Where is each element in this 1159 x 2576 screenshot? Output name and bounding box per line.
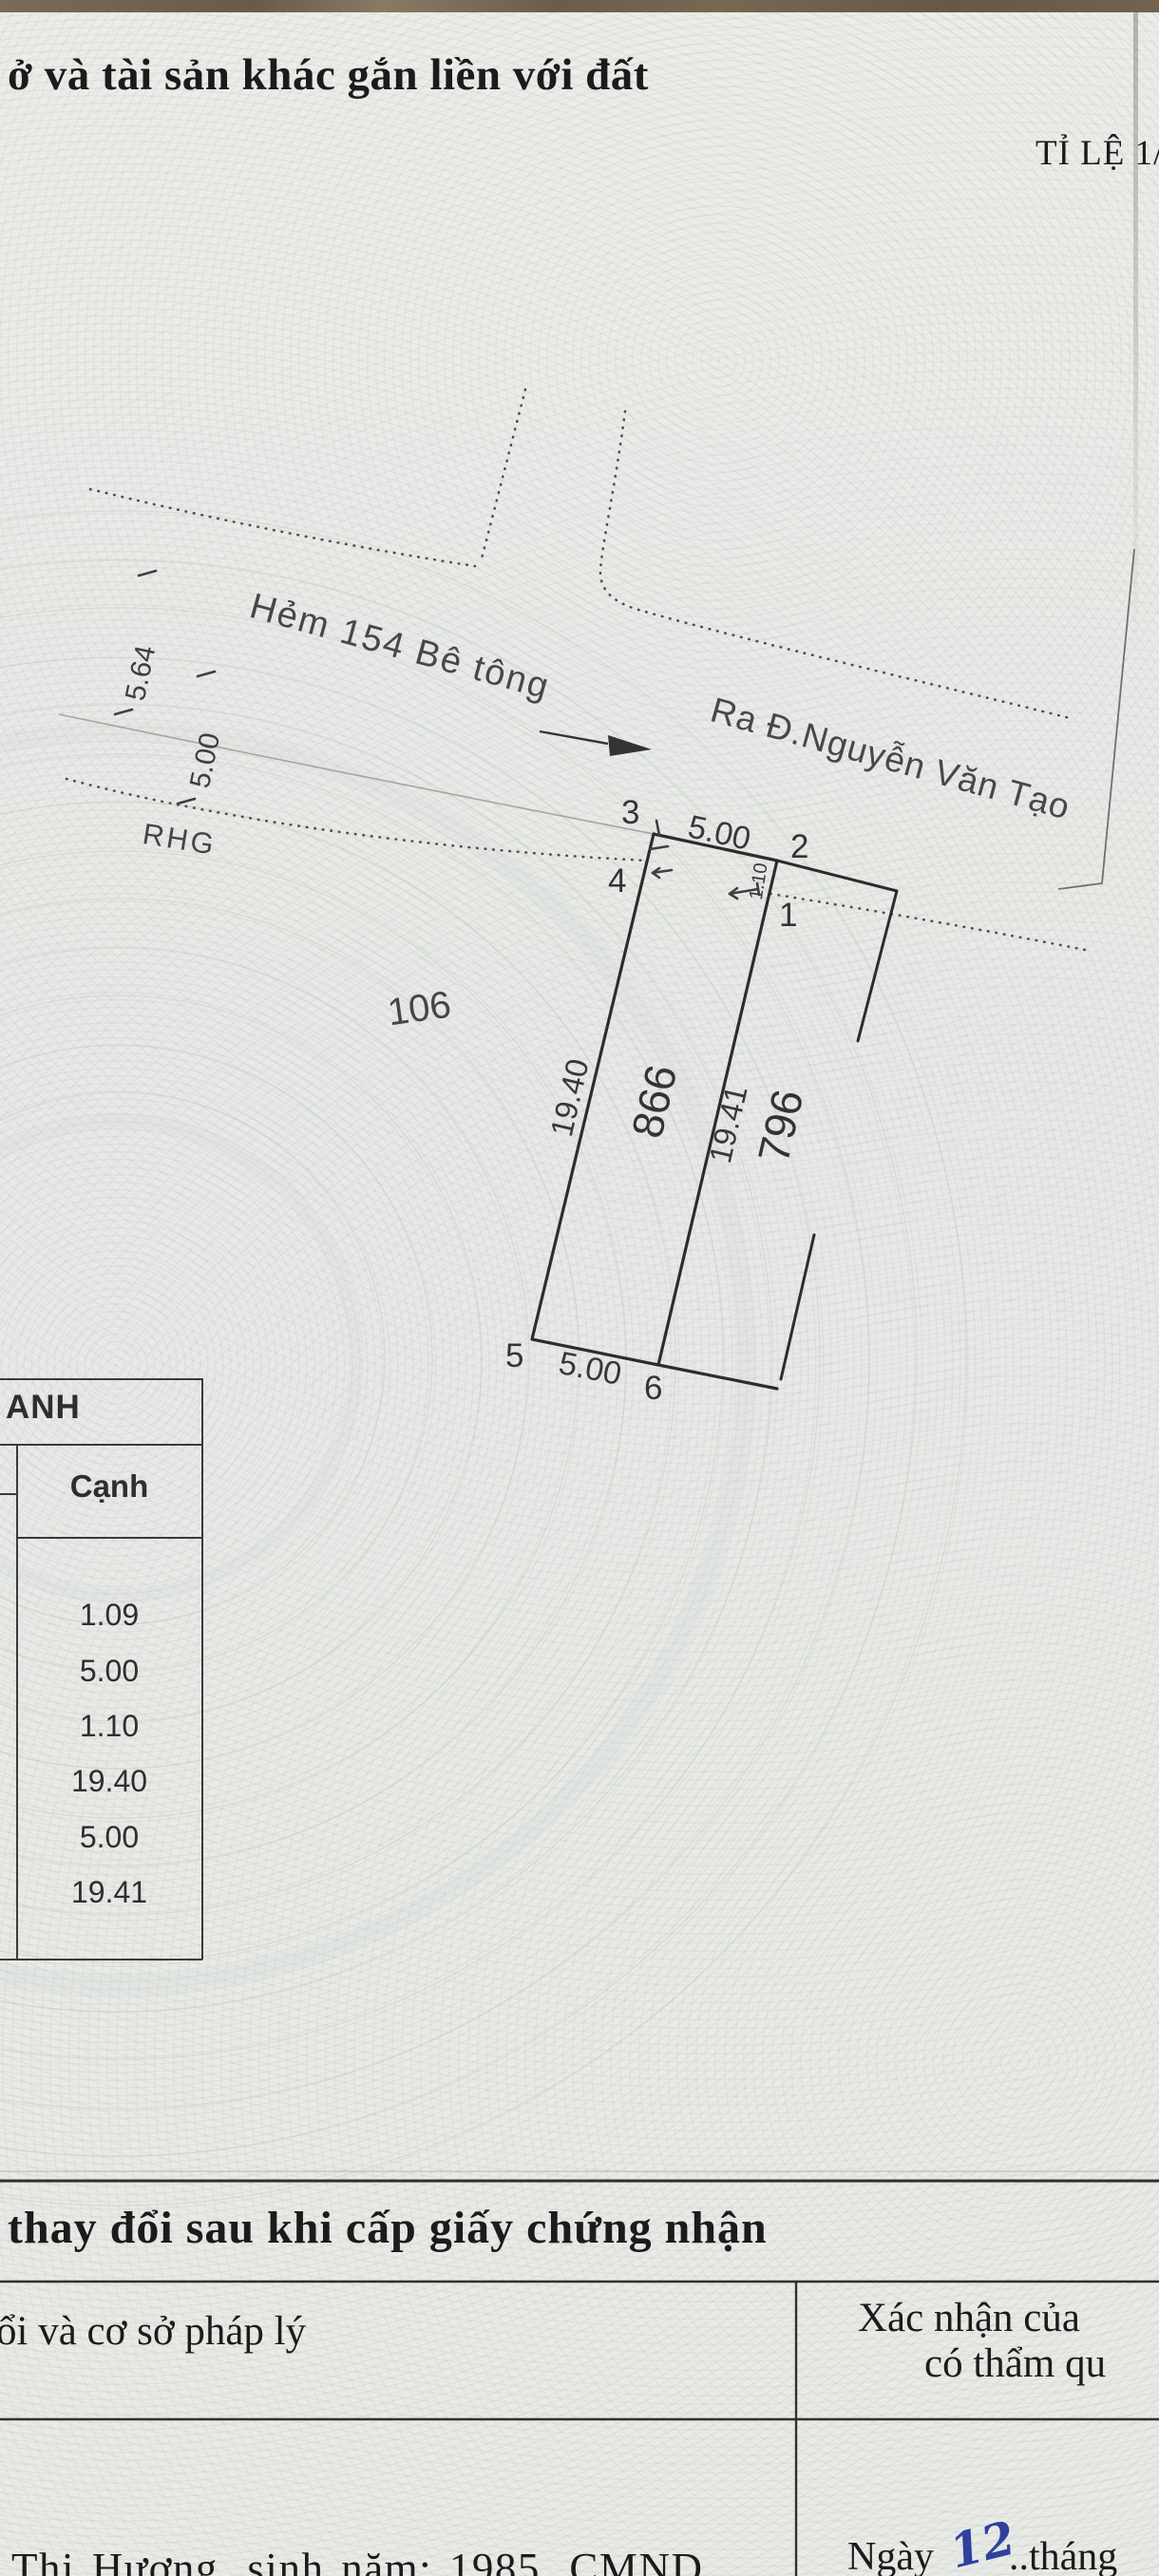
edge-value-row: 5.00 bbox=[17, 1820, 201, 1855]
road-south-edge-east-dash bbox=[770, 894, 1085, 950]
edge-column-header: Cạnh bbox=[17, 1468, 201, 1505]
point-label-1: 1 bbox=[779, 897, 797, 935]
confirmation-column-header-line1: Xác nhận của bbox=[858, 2295, 1080, 2341]
edge-value-row: 1.09 bbox=[17, 1598, 201, 1633]
land-certificate-page-photo: ở và tài sản khác gắn liền với đất TỈ LỆ… bbox=[0, 0, 1159, 2576]
direction-arrow-icon bbox=[540, 731, 652, 756]
date-line-suffix: ..tháng bbox=[1009, 2534, 1117, 2576]
date-line-prefix: Ngày bbox=[847, 2534, 934, 2576]
point-label-2: 2 bbox=[790, 828, 808, 866]
cadastral-sketch bbox=[0, 0, 1159, 2576]
edge-value-row: 5.00 bbox=[17, 1654, 201, 1689]
emblem-guilloche bbox=[0, 511, 966, 2206]
point-label-3: 3 bbox=[621, 794, 639, 832]
edge-value-row: 1.10 bbox=[17, 1709, 201, 1744]
edge-value-row: 19.41 bbox=[17, 1875, 201, 1910]
point-label-6: 6 bbox=[644, 1370, 662, 1408]
adjacent-parcel-number: 106 bbox=[385, 984, 453, 1035]
change-entry-text-fragment: Thị Hương, sinh năm: 1985, CMND bbox=[11, 2544, 703, 2576]
confirmation-column-header-line2: có thẩm qu bbox=[924, 2340, 1106, 2387]
alley-branch-left-dash bbox=[481, 389, 525, 562]
page-title-fragment: ở và tài sản khác gắn liền với đất bbox=[8, 49, 649, 101]
edge-value-row: 19.40 bbox=[17, 1764, 201, 1799]
road-dashed-boundaries bbox=[66, 389, 1085, 950]
changes-left-column-header-fragment: ổi và cơ sở pháp lý bbox=[0, 2308, 306, 2355]
point-label-5: 5 bbox=[505, 1337, 523, 1375]
neighbor-boundary-thin-line bbox=[1058, 549, 1134, 889]
point-label-4: 4 bbox=[608, 862, 626, 900]
scale-label: TỈ LỆ 1/ bbox=[1035, 133, 1159, 174]
coordinate-table-header-fragment: ANH bbox=[6, 1389, 81, 1427]
alley-branch-right-dash bbox=[600, 411, 1073, 719]
changes-section-heading-fragment: thay đổi sau khi cấp giấy chứng nhận bbox=[8, 2202, 768, 2254]
